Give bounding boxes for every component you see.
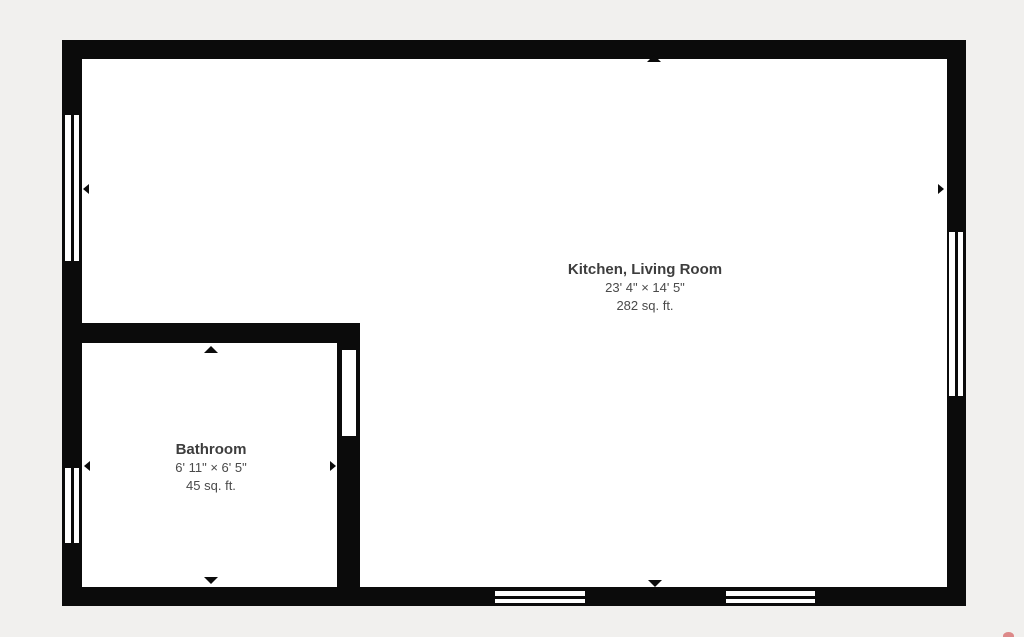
room-area: 282 sq. ft. xyxy=(568,297,722,314)
window xyxy=(724,589,817,605)
direction-arrow xyxy=(648,580,662,587)
room-name: Bathroom xyxy=(175,441,246,458)
window xyxy=(493,589,587,605)
direction-arrow xyxy=(330,461,336,471)
window xyxy=(947,230,965,398)
direction-arrow xyxy=(938,184,944,194)
direction-arrow xyxy=(204,577,218,584)
room-name: Kitchen, Living Room xyxy=(568,261,722,278)
room-dimensions: 6' 11" × 6' 5" xyxy=(175,459,246,476)
direction-arrow xyxy=(647,55,661,62)
wall xyxy=(62,40,966,59)
wall xyxy=(62,323,360,343)
room-label-kitchen-living-room: Kitchen, Living Room 23' 4" × 14' 5" 282… xyxy=(568,261,722,314)
floorplan-canvas: Kitchen, Living Room 23' 4" × 14' 5" 282… xyxy=(0,0,1024,637)
room-label-bathroom: Bathroom 6' 11" × 6' 5" 45 sq. ft. xyxy=(175,441,246,494)
direction-arrow xyxy=(204,346,218,353)
direction-arrow xyxy=(83,184,89,194)
room-area: 45 sq. ft. xyxy=(175,477,246,494)
watermark-logo-fragment xyxy=(1003,632,1014,637)
direction-arrow xyxy=(84,461,90,471)
window xyxy=(63,113,81,263)
room-dimensions: 23' 4" × 14' 5" xyxy=(568,279,722,296)
door-opening xyxy=(340,350,358,436)
window xyxy=(63,466,81,545)
